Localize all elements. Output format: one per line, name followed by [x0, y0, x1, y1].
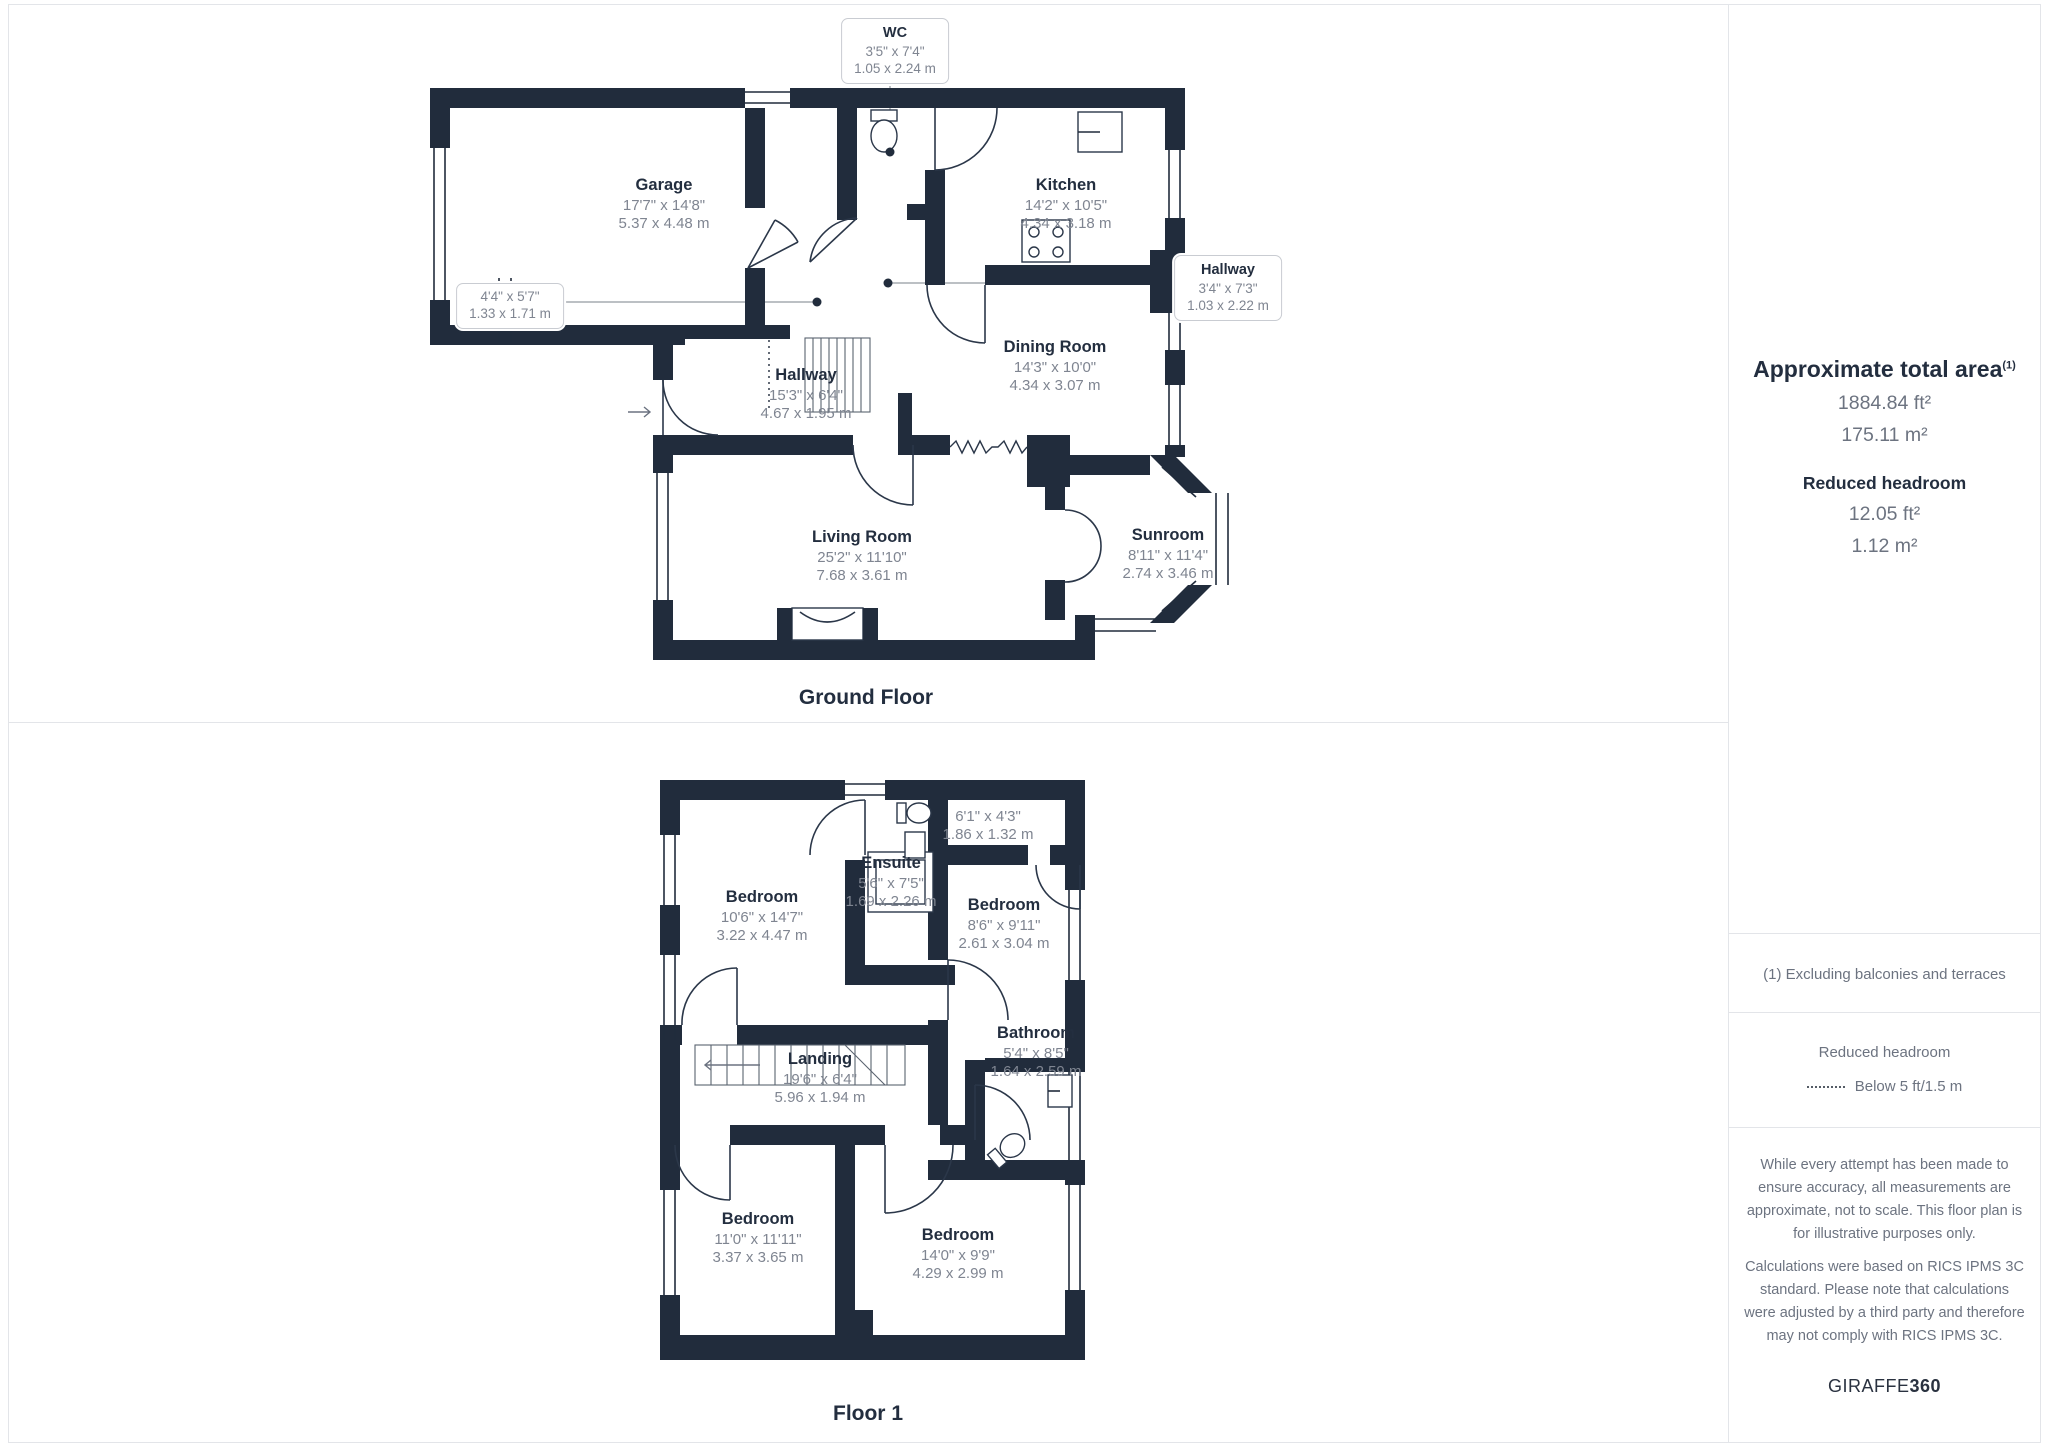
room-label-living: Living Room 25'2" x 11'10" 7.68 x 3.61 m	[812, 528, 912, 585]
entry-arrow-icon	[628, 407, 650, 417]
total-area-block: Approximate total area(1) 1884.84 ft² 17…	[1729, 356, 2040, 558]
room-label-bedroom-br: Bedroom 14'0" x 9'9" 4.29 x 2.99 m	[913, 1226, 1004, 1283]
step-opening	[950, 441, 1027, 453]
callout-wc: WC 3'5" x 7'4" 1.05 x 2.24 m	[841, 18, 949, 84]
dotted-line-swatch	[1807, 1086, 1845, 1088]
reduced-headroom-ft: 12.05 ft²	[1729, 503, 2040, 526]
sidebar-section-divider	[1729, 1127, 2040, 1128]
hallway2-anchor-dot	[884, 279, 893, 288]
wc-anchor-dot	[886, 148, 895, 157]
room-label-closet-dims: 6'1" x 4'3" 1.86 x 1.32 m	[943, 808, 1034, 843]
footnote-text: (1) Excluding balconies and terraces	[1729, 966, 2040, 983]
info-sidebar: Approximate total area(1) 1884.84 ft² 17…	[1729, 4, 2040, 1442]
stairs-direction-arrow	[705, 1060, 760, 1070]
floorplan-page: Garage 17'7" x 14'8" 5.37 x 4.48 m Kitch…	[0, 0, 2048, 1449]
toilet-icon	[897, 803, 931, 823]
room-label-kitchen: Kitchen 14'2" x 10'5" 4.34 x 3.18 m	[1021, 176, 1112, 233]
ground-floor-title: Ground Floor	[799, 686, 933, 710]
disclaimer-paragraph-2: Calculations were based on RICS IPMS 3C …	[1743, 1256, 2026, 1348]
room-label-bedroom-r: Bedroom 8'6" x 9'11" 2.61 x 3.04 m	[959, 896, 1050, 953]
reduced-headroom-m: 1.12 m²	[1729, 535, 2040, 558]
room-label-hallway: Hallway 15'3" x 6'4" 4.67 x 1.95 m	[761, 366, 852, 423]
sidebar-section-divider	[1729, 933, 2040, 934]
sidebar-section-divider	[1729, 1012, 2040, 1013]
room-label-bathroom: Bathroom 5'4" x 8'5" 1.64 x 2.59 m	[991, 1024, 1082, 1081]
room-label-ensuite: Ensuite 5'6" x 7'5" 1.69 x 2.26 m	[846, 854, 937, 911]
giraffe360-logo: GIRAFFE360	[1729, 1376, 2040, 1397]
toilet-icon	[871, 110, 897, 152]
callout-closet: 4'4" x 5'7" 1.33 x 1.71 m	[456, 283, 564, 329]
total-area-title: Approximate total area(1)	[1729, 356, 2040, 383]
legend-entry: Below 5 ft/1.5 m	[1729, 1078, 2040, 1095]
room-label-dining: Dining Room 14'3" x 10'0" 4.34 x 3.07 m	[1004, 338, 1107, 395]
fireplace	[777, 608, 878, 640]
footnote-ref: (1)	[2002, 359, 2015, 371]
legend-title: Reduced headroom	[1729, 1044, 2040, 1061]
callout-hallway2: Hallway 3'4" x 7'3" 1.03 x 2.22 m	[1174, 255, 1282, 321]
legend-block: Reduced headroom Below 5 ft/1.5 m	[1729, 1044, 2040, 1095]
reduced-headroom-title: Reduced headroom	[1729, 473, 2040, 494]
floor1-title: Floor 1	[833, 1402, 903, 1426]
total-area-m: 175.11 m²	[1729, 424, 2040, 447]
counter-icon	[1078, 112, 1122, 152]
total-area-ft: 1884.84 ft²	[1729, 392, 2040, 415]
room-label-garage: Garage 17'7" x 14'8" 5.37 x 4.48 m	[619, 176, 710, 233]
disclaimer-paragraph-1: While every attempt has been made to ens…	[1743, 1154, 2026, 1246]
room-label-landing: Landing 19'6" x 6'4" 5.96 x 1.94 m	[775, 1050, 866, 1107]
closet-anchor-dot	[813, 298, 822, 307]
floors-divider	[8, 722, 1728, 723]
room-label-bedroom-bl: Bedroom 11'0" x 11'11" 3.37 x 3.65 m	[713, 1210, 804, 1267]
room-label-sunroom: Sunroom 8'11" x 11'4" 2.74 x 3.46 m	[1123, 526, 1214, 583]
room-label-bedroom-tl: Bedroom 10'6" x 14'7" 3.22 x 4.47 m	[717, 888, 808, 945]
